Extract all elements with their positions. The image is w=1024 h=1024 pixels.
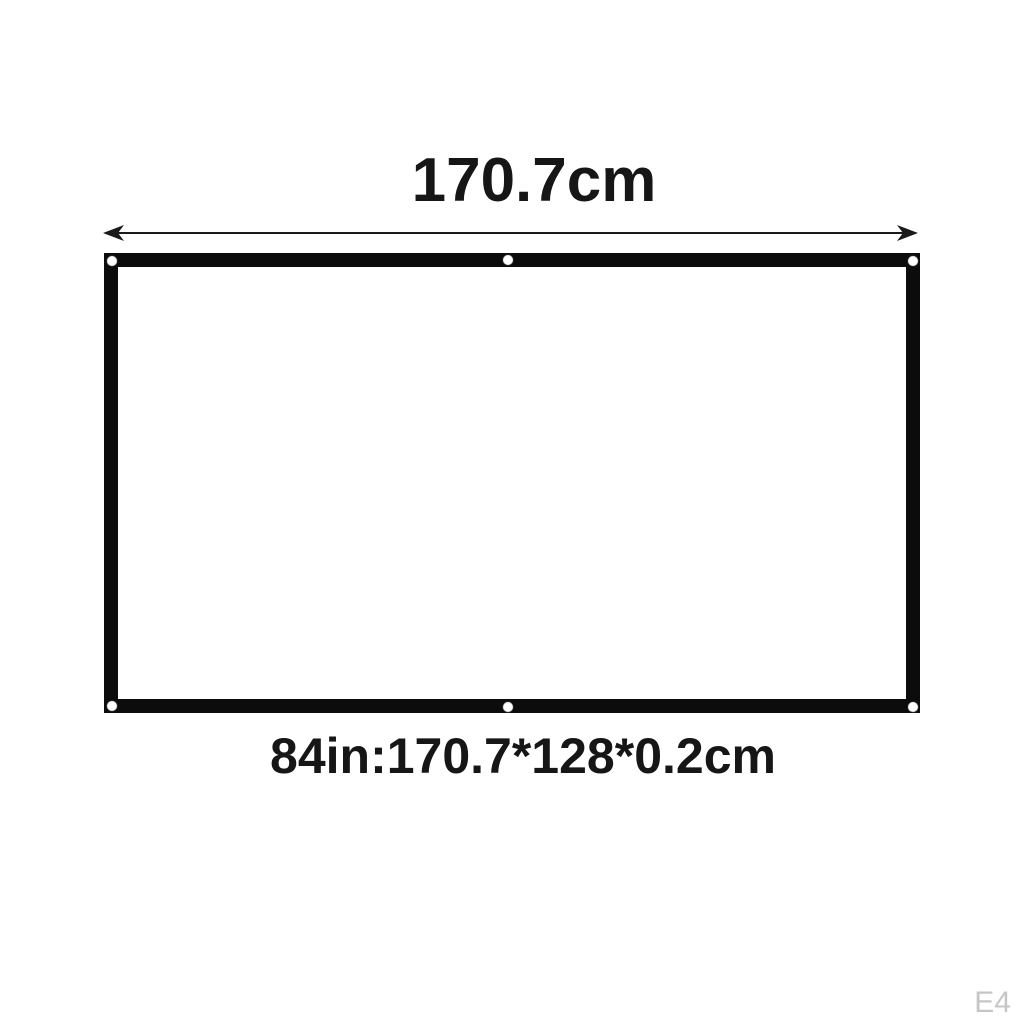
projector-screen (104, 253, 920, 713)
product-diagram: 170.7cm 84in:170.7*128*0.2cm E4 (0, 0, 1024, 1024)
grommet-icon (503, 255, 513, 265)
double-arrow-icon (102, 224, 919, 242)
grommet-icon (107, 256, 117, 266)
watermark-text: E4 (974, 986, 1011, 1020)
grommet-icon (503, 702, 513, 712)
grommet-icon (908, 702, 918, 712)
width-dimension-label: 170.7cm (22, 148, 1024, 213)
grommet-icon (908, 256, 918, 266)
grommet-icon (107, 701, 117, 711)
size-specification-label: 84in:170.7*128*0.2cm (11, 728, 1024, 786)
